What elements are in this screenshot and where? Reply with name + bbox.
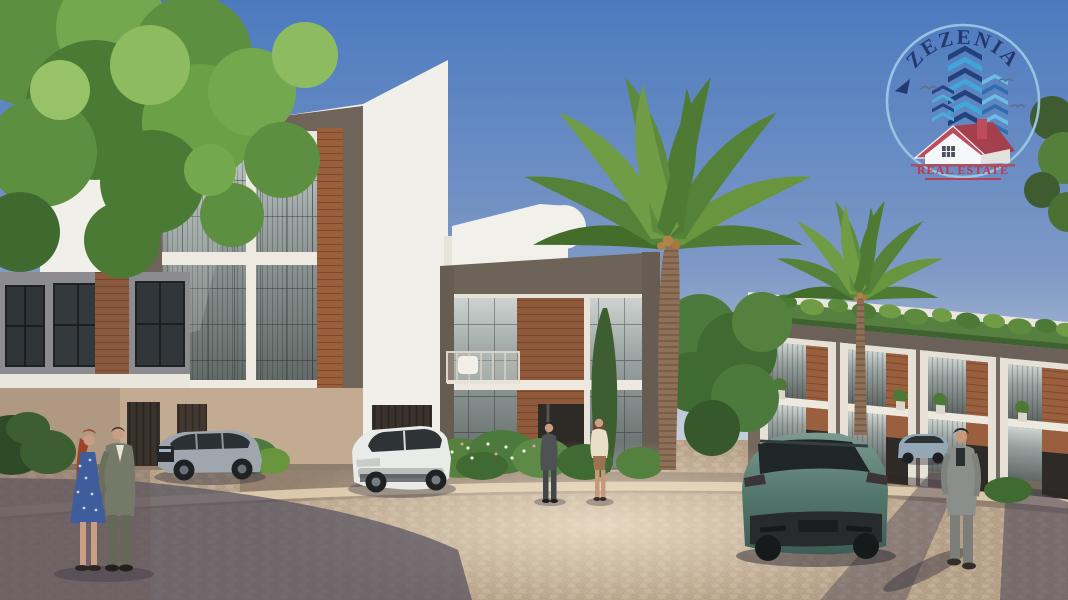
architectural-rendering: ZEZENIA REAL ESTATE (0, 0, 1068, 600)
white-cap-band (0, 374, 190, 388)
teal-suv-road (736, 433, 896, 567)
balcony-chair (458, 356, 478, 374)
gray-side-building (0, 272, 190, 388)
logo-tagline-text: REAL ESTATE (917, 163, 1009, 177)
balcony (447, 352, 519, 384)
white-suv-center (348, 426, 456, 498)
silver-suv-left (154, 430, 266, 485)
taupe-right-edge (642, 252, 660, 470)
